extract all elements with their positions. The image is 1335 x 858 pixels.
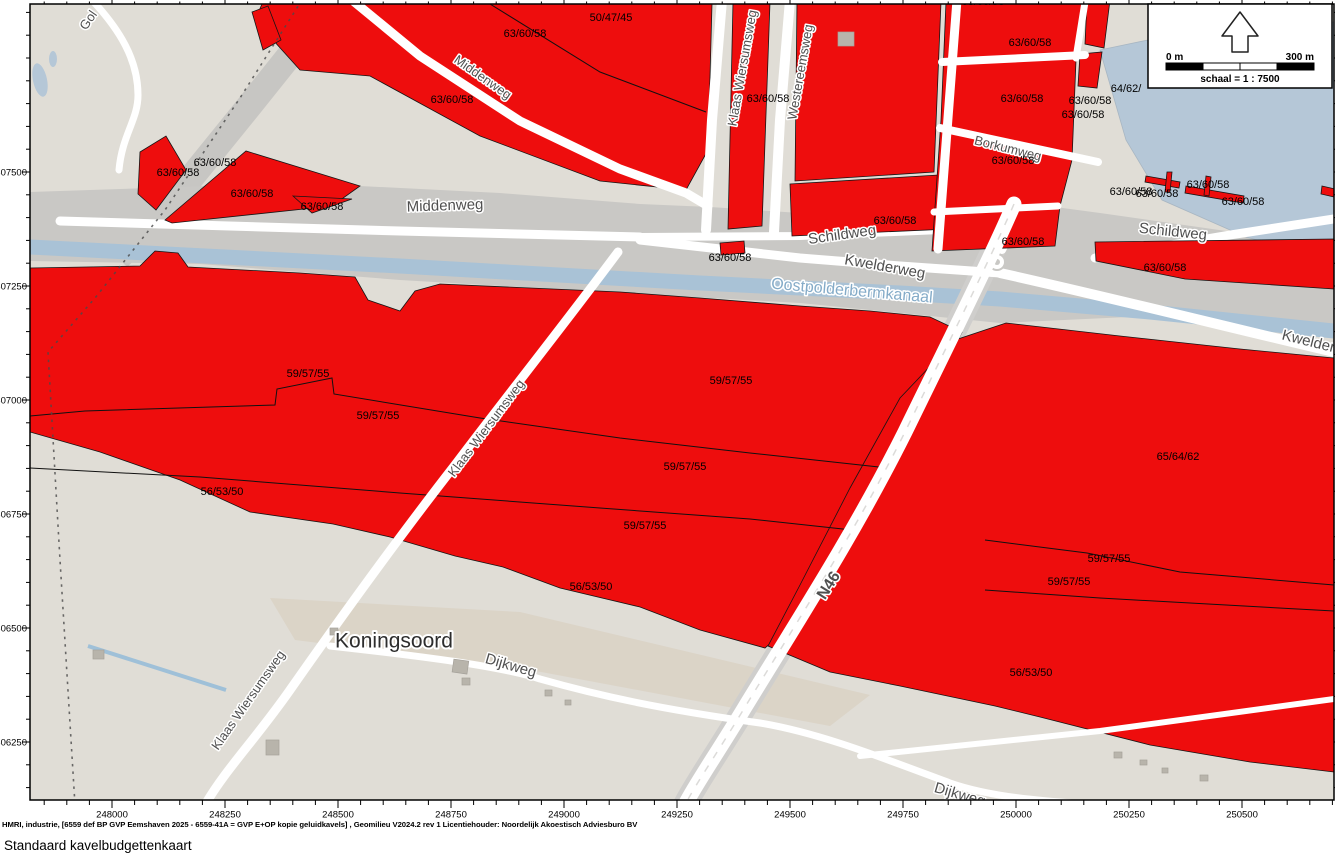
x-axis-labels: 2480002482502485002487502490002492502495… <box>96 809 1258 820</box>
noise-value-label: 63/60/58 <box>1001 93 1044 105</box>
page-title: Standaard kavelbudgettenkaart <box>4 838 192 853</box>
x-axis-label: 249000 <box>548 809 580 820</box>
y-axis-label: 607000 <box>0 395 27 406</box>
road-label: Middenweg <box>406 196 483 216</box>
noise-value-label: 63/60/58 <box>709 252 752 264</box>
scale-ratio-label: schaal = 1 : 7500 <box>1200 74 1280 85</box>
building <box>1114 752 1122 758</box>
map-canvas: Oostpolderbermkanaal GolMiddenwegMiddenw… <box>30 0 1335 810</box>
noise-value-label: 56/53/50 <box>201 486 244 498</box>
noise-value-label: 64/62/ <box>1111 83 1143 95</box>
y-axis-labels: 607500607250607000606750606500606250 <box>0 167 27 748</box>
y-axis-label: 607500 <box>0 167 27 178</box>
noise-value-label: 63/60/58 <box>301 201 344 213</box>
building <box>565 700 571 705</box>
noise-value-label: 59/57/55 <box>287 368 330 380</box>
building <box>545 690 552 696</box>
building <box>266 740 279 755</box>
y-axis-label: 606250 <box>0 737 27 748</box>
noise-value-label: 63/60/58 <box>194 157 237 169</box>
noise-value-label: 63/60/58 <box>231 188 274 200</box>
x-axis-label: 248750 <box>435 809 467 820</box>
place-labels: Koningsoord <box>335 629 453 652</box>
x-axis-label: 248250 <box>209 809 241 820</box>
noise-value-label: 56/53/50 <box>570 581 613 593</box>
y-axis-label: 606750 <box>0 509 27 520</box>
x-axis-label: 248000 <box>96 809 128 820</box>
noise-value-label: 63/60/58 <box>1136 188 1179 200</box>
x-axis-label: 249500 <box>774 809 806 820</box>
pond-small <box>49 51 57 67</box>
noise-value-label: 63/60/58 <box>1222 196 1265 208</box>
scale-box: 0 m 300 m schaal = 1 : 7500 <box>1148 4 1332 88</box>
noise-value-label: 63/60/58 <box>992 155 1035 167</box>
noise-value-label: 59/57/55 <box>1048 576 1091 588</box>
noise-value-label: 63/60/58 <box>1062 109 1105 121</box>
building <box>838 32 854 46</box>
place-label: Koningsoord <box>335 629 453 652</box>
noise-value-label: 63/60/58 <box>1144 262 1187 274</box>
noise-value-label: 59/57/55 <box>357 410 400 422</box>
x-axis-label: 248500 <box>322 809 354 820</box>
x-axis-label: 250250 <box>1113 809 1145 820</box>
noise-value-label: 50/47/45 <box>590 12 633 24</box>
building <box>93 650 104 659</box>
noise-value-label: 59/57/55 <box>664 461 707 473</box>
building <box>452 659 469 674</box>
scale-right-label: 300 m <box>1286 52 1314 63</box>
x-axis-label: 249250 <box>661 809 693 820</box>
red-parcel-block <box>795 2 941 181</box>
noise-value-label: 65/64/62 <box>1157 451 1200 463</box>
noise-value-label: 63/60/58 <box>747 93 790 105</box>
noise-value-label: 59/57/55 <box>624 520 667 532</box>
y-axis-label: 607250 <box>0 281 27 292</box>
noise-value-label: 63/60/58 <box>1009 37 1052 49</box>
noise-value-label: 63/60/58 <box>1002 236 1045 248</box>
building <box>1200 775 1208 781</box>
noise-value-label: 63/60/58 <box>1069 95 1112 107</box>
noise-value-label: 56/53/50 <box>1010 667 1053 679</box>
building <box>1140 760 1147 765</box>
noise-value-label: 63/60/58 <box>874 215 917 227</box>
noise-value-label: 63/60/58 <box>1187 179 1230 191</box>
noise-value-label: 59/57/55 <box>1088 553 1131 565</box>
building <box>462 678 470 685</box>
x-axis-label: 249750 <box>887 809 919 820</box>
noise-value-label: 63/60/58 <box>157 167 200 179</box>
building <box>1162 768 1168 773</box>
scale-bar <box>1166 63 1314 70</box>
y-axis-label: 606500 <box>0 623 27 634</box>
noise-value-label: 59/57/55 <box>710 375 753 387</box>
noise-value-label: 63/60/58 <box>504 28 547 40</box>
scale-left-label: 0 m <box>1166 52 1183 63</box>
noise-value-label: 63/60/58 <box>431 94 474 106</box>
map-credit: HMRI, industrie, [6559 def BP GVP Eemsha… <box>2 820 637 829</box>
x-axis-label: 250000 <box>1000 809 1032 820</box>
x-axis-label: 250500 <box>1226 809 1258 820</box>
noise-budget-map: Oostpolderbermkanaal GolMiddenwegMiddenw… <box>0 0 1335 853</box>
